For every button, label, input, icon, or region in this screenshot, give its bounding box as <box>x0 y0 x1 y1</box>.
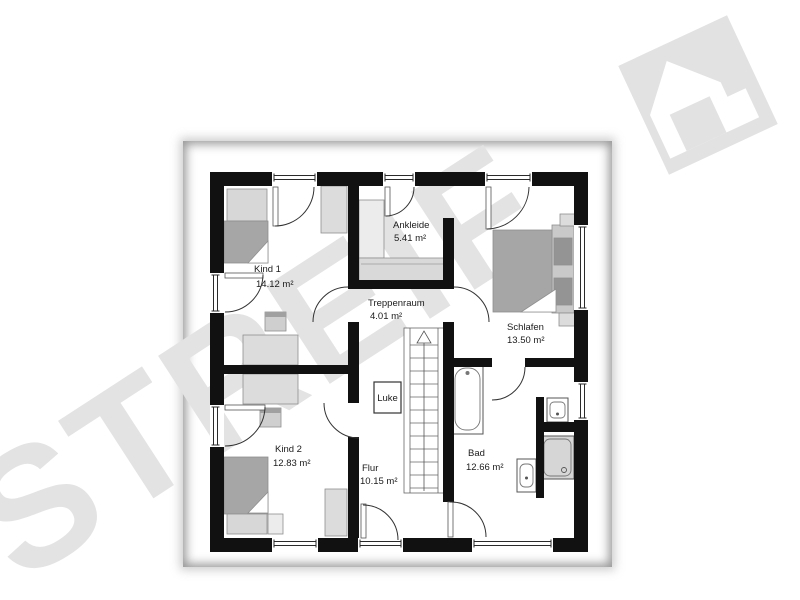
shower <box>541 436 574 479</box>
svg-text:Treppenraum: Treppenraum <box>368 298 425 309</box>
window-bad-right <box>574 382 588 420</box>
window-ankleide-top <box>383 172 415 186</box>
streif-house-logo <box>618 15 777 174</box>
window-flur-bottom <box>358 538 403 552</box>
svg-text:4.01 m²: 4.01 m² <box>370 311 402 322</box>
window-kind1-left <box>210 273 224 313</box>
svg-text:12.83 m²: 12.83 m² <box>273 458 311 469</box>
desk-kind1 <box>243 335 298 365</box>
svg-text:10.15 m²: 10.15 m² <box>360 476 398 487</box>
svg-text:14.12 m²: 14.12 m² <box>256 279 294 290</box>
window-schlafen-right <box>574 225 588 310</box>
wardrobe-kind1 <box>321 186 347 233</box>
svg-text:12.66 m²: 12.66 m² <box>466 462 504 473</box>
room-label-flur: Flur 10.15 m² <box>360 463 398 487</box>
staircase <box>404 328 444 493</box>
door-leaf <box>361 504 366 538</box>
svg-text:Flur: Flur <box>362 463 378 474</box>
bed-kind1 <box>224 189 268 263</box>
chair-kind1 <box>265 312 286 331</box>
window-schlafen-top <box>485 172 532 186</box>
room-label-schlafen: Schlafen 13.50 m² <box>507 322 545 346</box>
svg-text:Bad: Bad <box>468 448 485 459</box>
door-leaf <box>486 187 491 229</box>
door-leaf <box>385 187 390 216</box>
attic-hatch: Luke <box>374 382 401 413</box>
toilet <box>517 459 536 492</box>
svg-text:5.41 m²: 5.41 m² <box>394 233 426 244</box>
bed-schlafen <box>493 225 574 313</box>
floor-plan-page: STREIF <box>0 0 800 600</box>
nightstand-top <box>560 214 576 226</box>
wardrobe-kind2 <box>325 489 347 536</box>
door-leaf <box>225 405 265 410</box>
bathtub <box>452 364 483 434</box>
window-kind2-left <box>210 405 224 447</box>
window-kind2-bottom <box>272 538 318 552</box>
svg-text:Ankleide: Ankleide <box>393 220 429 231</box>
desk-kind2 <box>243 374 298 404</box>
room-label-bad: Bad 12.66 m² <box>466 448 504 473</box>
door-arc-bad <box>492 367 525 400</box>
svg-text:Kind 2: Kind 2 <box>275 444 302 455</box>
door-leaf <box>448 502 453 537</box>
svg-text:13.50 m²: 13.50 m² <box>507 335 545 346</box>
svg-text:Kind 1: Kind 1 <box>254 264 281 275</box>
svg-text:Schlafen: Schlafen <box>507 322 544 333</box>
door-leaf <box>273 187 278 226</box>
floor-plan-drawing: STREIF <box>0 0 800 600</box>
window-bad-bottom <box>472 538 553 552</box>
washbasin <box>547 398 568 422</box>
attic-hatch-label: Luke <box>377 393 398 404</box>
window-kind1-top <box>272 172 317 186</box>
